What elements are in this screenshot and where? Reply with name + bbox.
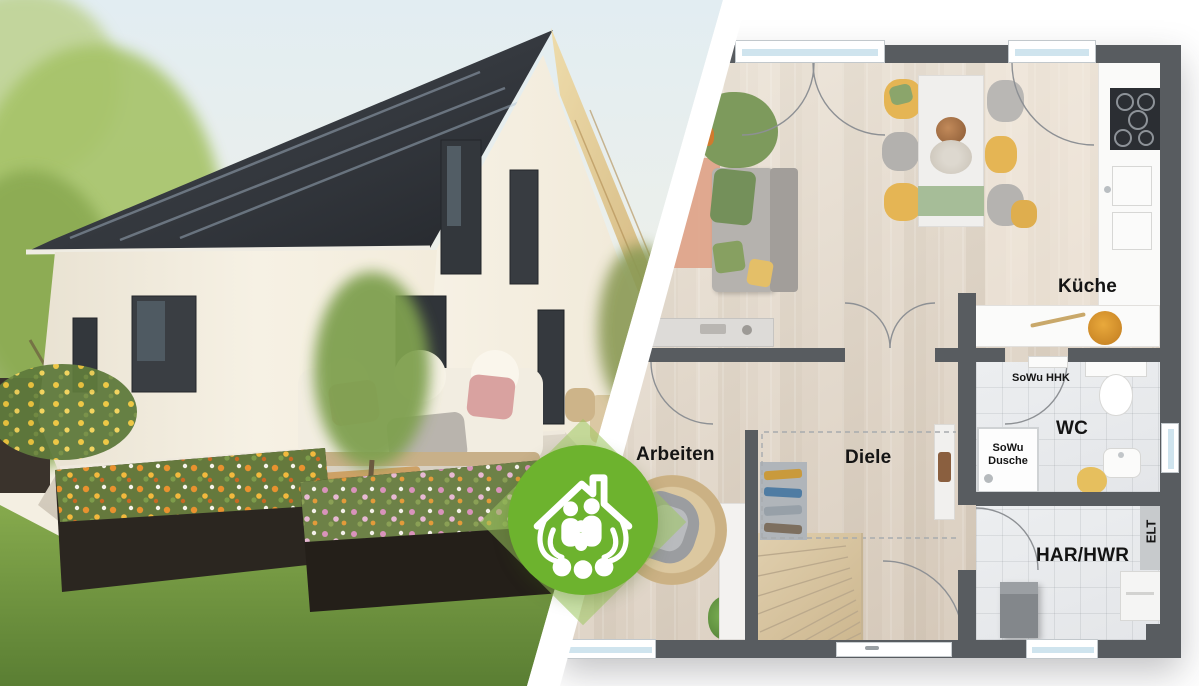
wall-right [1160,45,1181,658]
door-swing-arc [1012,63,1094,145]
gable-upper-window-right [510,170,538,284]
wall-interior-vertical [958,570,976,640]
room-label-diele: Diele [845,447,891,469]
door-handle [865,646,879,650]
room-label-kueche: Küche [1058,276,1117,298]
roof-with-chimney [537,478,629,526]
door-swing-arc [813,63,885,135]
entrance-door [836,642,952,657]
door-swing-arc [742,63,814,135]
window-glass [1168,429,1174,469]
window-glass [1015,49,1089,56]
label-sowu-dusche-line2: Dusche [977,455,1039,468]
marketing-image: Küche WC Arbeiten Diele HAR/HWR SoWu HHK… [0,0,1199,686]
wall-wc-har [976,492,1160,506]
towel-radiator-hhk [1028,356,1068,368]
double-door-arc [890,303,935,348]
window-kitchen [1008,40,1096,63]
label-sowu-dusche-line1: SoWu [977,442,1039,455]
window-glass [560,647,652,653]
window-glass [742,49,878,56]
wall-stub [1146,624,1160,640]
patio-tree [314,272,430,468]
window-terrace-door [735,40,885,63]
family-figures [561,498,601,551]
entrance-door-arc [883,561,963,641]
window-reflection [447,146,461,226]
wall-interior-vertical [958,293,976,505]
room-label-har-hwr: HAR/HWR [1036,545,1129,567]
window-reflection [137,301,165,361]
door-swing-arc [651,362,713,424]
label-sowu-hhk: SoWu HHK [1012,372,1070,384]
wall-interior [1068,348,1160,362]
window-glass [1032,647,1094,653]
label-sowu-dusche: SoWu Dusche [977,442,1039,468]
double-door-arc [845,303,890,348]
window-wc [1161,423,1179,473]
har-door-arc [976,508,1038,570]
label-elt: ELT [1144,509,1159,555]
window-har [1026,639,1098,659]
wall-staircase [745,430,758,640]
hand-circles [553,558,614,579]
stair-treads [758,546,861,641]
room-label-wc: WC [1056,418,1088,440]
house-family-in-hands-icon [521,458,645,582]
brand-badge [508,445,658,595]
